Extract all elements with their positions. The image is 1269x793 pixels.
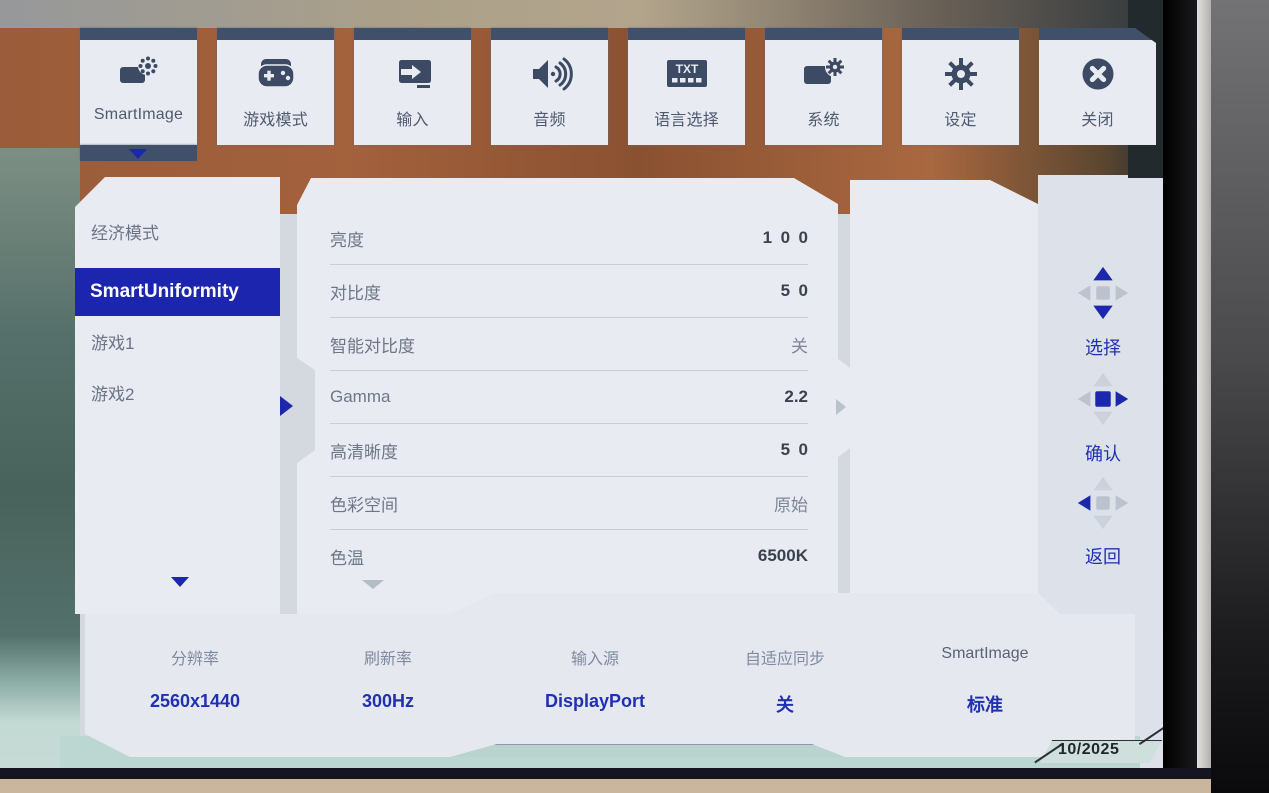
tab-top-strip [902, 28, 1019, 40]
sidebar-item-eco-mode[interactable]: 经济模式 [75, 217, 280, 251]
status-label: 分辨率 [100, 645, 290, 669]
status-value: 关 [690, 691, 880, 717]
tab-game-mode[interactable]: 游戏模式 [217, 28, 334, 145]
dpad-left-icon [1072, 472, 1134, 539]
monitor-bezel-inner [1163, 0, 1197, 780]
monitor-bezel-edge [1197, 0, 1211, 780]
setting-row-smartcontrast[interactable]: 智能对比度 关 [330, 318, 808, 371]
monitor-screen: SmartImage 游戏模式 [0, 0, 1163, 772]
svg-text:TXT: TXT [675, 62, 698, 76]
sidebar-item-game1[interactable]: 游戏1 [75, 327, 280, 361]
sidebar-item-label: 游戏1 [91, 334, 134, 353]
txt-language-icon: TXT [663, 54, 711, 99]
sidebar-item-game2[interactable]: 游戏2 [75, 378, 280, 412]
tab-label: 游戏模式 [217, 106, 334, 130]
tab-top-strip [354, 28, 471, 40]
setting-row-color-space[interactable]: 色彩空间 原始 [330, 477, 808, 530]
setting-label: 色温 [330, 544, 364, 569]
status-label: 自适应同步 [690, 645, 880, 669]
tab-language[interactable]: TXT 语言选择 [628, 28, 745, 145]
status-value: DisplayPort [500, 691, 690, 712]
tab-smartimage[interactable]: SmartImage [80, 28, 197, 145]
settings-panel: 亮度 100 对比度 50 智能对比度 关 Gamma 2.2 高清晰度 5 [297, 178, 838, 615]
tab-setup[interactable]: 设定 [902, 28, 1019, 145]
tab-top-strip [491, 28, 608, 40]
setting-label: Gamma [330, 387, 390, 407]
tab-top-strip [80, 28, 197, 40]
speaker-icon [526, 54, 574, 99]
tab-label: 输入 [354, 106, 471, 130]
sidebar-menu: 经济模式 SmartUniformity 游戏1 游戏2 [75, 177, 280, 614]
input-arrow-icon [389, 54, 437, 99]
smartimage-icon [115, 54, 163, 99]
status-label: 刷新率 [293, 645, 483, 669]
tab-system[interactable]: 系统 [765, 28, 882, 145]
setting-label: 智能对比度 [330, 332, 415, 357]
gear-icon [937, 54, 985, 99]
settings-scroll-down-icon[interactable] [362, 580, 384, 589]
background-photo-sky [0, 0, 1163, 30]
tab-label: 系统 [765, 106, 882, 130]
setting-row-sharpness[interactable]: 高清晰度 50 [330, 424, 808, 477]
setting-value: 原始 [774, 491, 808, 516]
sidebar-item-label: 游戏2 [91, 385, 134, 404]
selected-tab-indicator-band [80, 145, 197, 161]
tab-label: 音频 [491, 106, 608, 130]
tab-close[interactable]: 关闭 [1039, 28, 1156, 145]
room-background [1211, 0, 1269, 793]
tab-label: 设定 [902, 106, 1019, 130]
tab-top-strip [628, 28, 745, 40]
status-value: 2560x1440 [100, 691, 290, 712]
key-guide-select-label: 选择 [1058, 334, 1148, 360]
setting-value: 50 [781, 440, 817, 460]
subpanel-pointer-icon [836, 399, 846, 415]
status-label: 输入源 [500, 645, 690, 669]
status-bar-bottom-notch [450, 744, 845, 757]
selected-tab-arrow-icon [129, 149, 147, 159]
setting-row-gamma[interactable]: Gamma 2.2 [330, 371, 808, 424]
setting-label: 高清晰度 [330, 438, 398, 463]
tab-label: SmartImage [80, 106, 197, 124]
dpad-up-down-icon [1072, 262, 1134, 329]
tab-label: 关闭 [1039, 106, 1156, 130]
status-label: SmartImage [890, 645, 1080, 663]
setting-value: 2.2 [784, 387, 808, 407]
setting-label: 色彩空间 [330, 491, 398, 516]
tab-top-strip [765, 28, 882, 40]
setting-row-contrast[interactable]: 对比度 50 [330, 265, 808, 318]
setting-value: 6500K [758, 546, 808, 566]
status-bar: 分辨率 2560x1440 刷新率 300Hz 输入源 DisplayPort … [85, 593, 1135, 757]
background-photo-water [0, 148, 80, 772]
desk-surface [0, 779, 1211, 793]
photo-of-monitor: SmartImage 游戏模式 [0, 0, 1269, 793]
status-value: 标准 [890, 691, 1080, 717]
close-x-icon [1074, 54, 1122, 99]
key-guide-confirm-label: 确认 [1058, 440, 1148, 466]
setting-value: 50 [781, 281, 817, 301]
sidebar-item-label: 经济模式 [91, 224, 159, 243]
sidebar-scroll-down-icon[interactable] [171, 577, 189, 587]
setting-value: 关 [791, 332, 808, 357]
tab-label: 语言选择 [628, 106, 745, 130]
setting-label: 对比度 [330, 279, 381, 304]
tab-top-strip [217, 28, 334, 40]
date-watermark: 10/2025 [1058, 741, 1119, 759]
setting-value: 100 [763, 228, 817, 248]
setting-row-brightness[interactable]: 亮度 100 [330, 212, 808, 265]
sidebar-item-label: SmartUniformity [90, 281, 239, 302]
submenu-panel [850, 180, 1038, 595]
setting-label: 亮度 [330, 226, 364, 251]
sidebar-item-smartuniformity[interactable]: SmartUniformity [75, 268, 280, 316]
system-gear-icon [800, 54, 848, 99]
tab-input[interactable]: 输入 [354, 28, 471, 145]
key-guide-back-label: 返回 [1058, 543, 1148, 569]
setting-row-color-temp[interactable]: 色温 6500K [330, 530, 808, 582]
gamepad-icon [252, 54, 300, 99]
dpad-ok-right-icon [1072, 368, 1134, 435]
selection-pointer-icon [280, 396, 293, 416]
tab-audio[interactable]: 音频 [491, 28, 608, 145]
status-value: 300Hz [293, 691, 483, 712]
